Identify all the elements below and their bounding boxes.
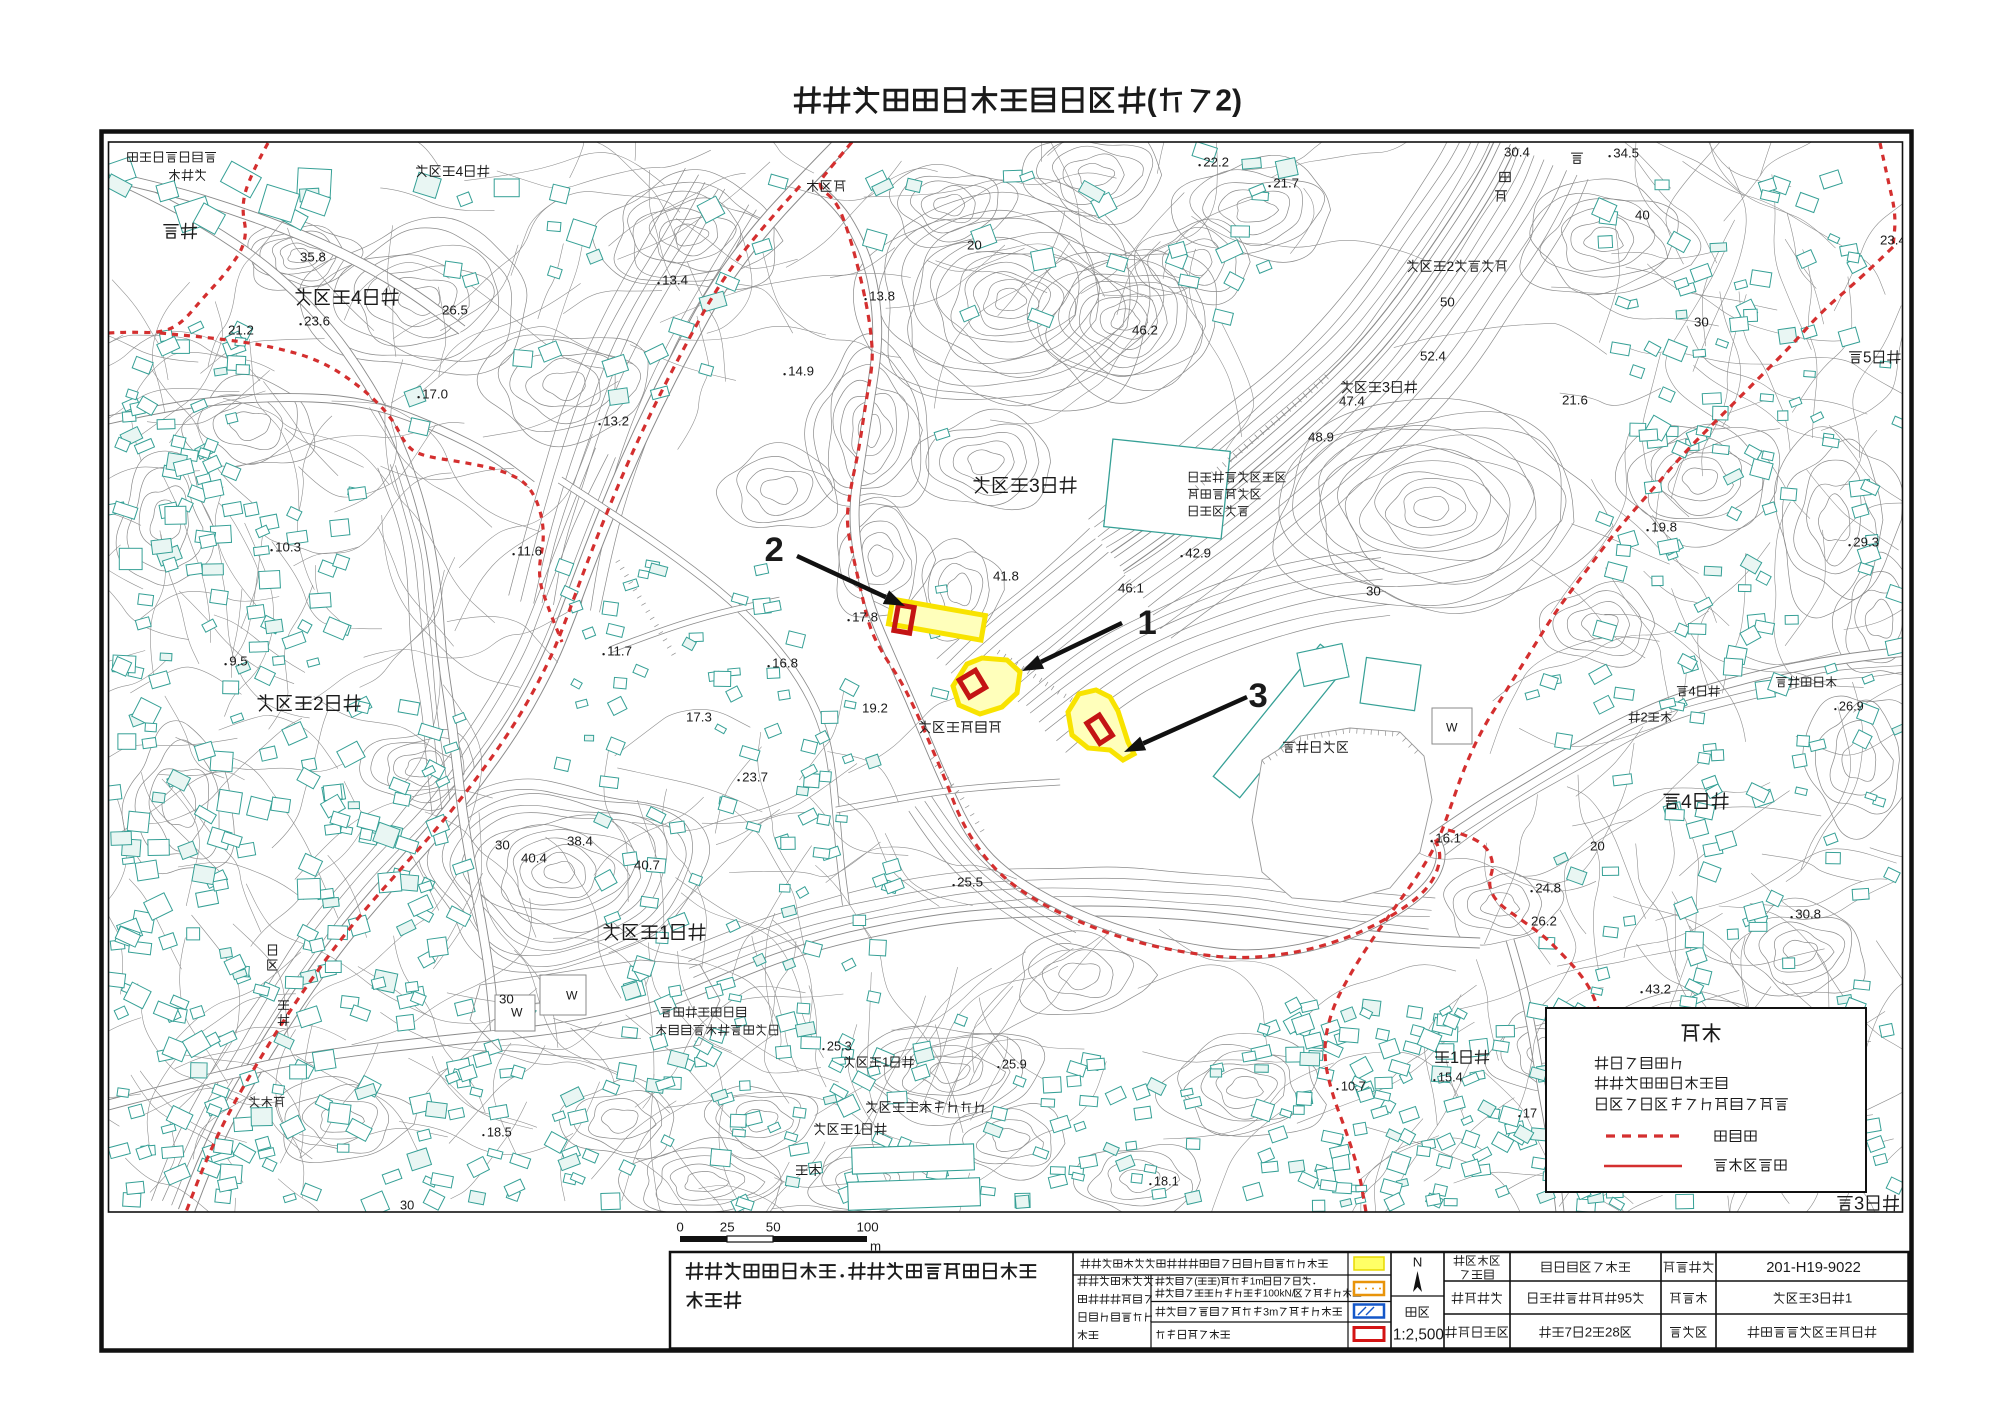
svg-text:10.3: 10.3 (275, 540, 301, 555)
svg-text:26.5: 26.5 (442, 303, 468, 318)
svg-text:13.8: 13.8 (869, 289, 895, 304)
svg-text:21.2: 21.2 (228, 323, 254, 338)
svg-text:1m: 1m (1250, 1277, 1264, 1288)
svg-text:34.5: 34.5 (1613, 146, 1639, 161)
svg-text:18.5: 18.5 (487, 1125, 512, 1140)
svg-text:7: 7 (1565, 1325, 1572, 1340)
svg-text:100: 100 (857, 1220, 879, 1235)
svg-text:17.8: 17.8 (852, 610, 878, 625)
svg-text:48.9: 48.9 (1308, 430, 1334, 445)
svg-text:40.4: 40.4 (521, 851, 547, 866)
svg-text:40.7: 40.7 (634, 858, 660, 873)
svg-text:25.5: 25.5 (957, 875, 983, 890)
svg-text:29.3: 29.3 (1853, 535, 1879, 550)
svg-text:30: 30 (1366, 584, 1381, 599)
svg-text:46.1: 46.1 (1118, 581, 1144, 596)
svg-text:30.8: 30.8 (1795, 907, 1821, 922)
svg-text:): ) (1217, 1277, 1220, 1288)
svg-text:43.2: 43.2 (1645, 982, 1671, 997)
svg-text:9.5: 9.5 (229, 654, 248, 669)
svg-text:38.4: 38.4 (567, 834, 593, 849)
svg-text:1: 1 (854, 1122, 862, 1137)
svg-text:21.6: 21.6 (1562, 393, 1588, 408)
svg-text:2): 2) (1215, 85, 1242, 118)
svg-text:95: 95 (1617, 1291, 1632, 1306)
svg-text:50: 50 (1440, 295, 1455, 310)
svg-text:16.1: 16.1 (1435, 831, 1461, 846)
svg-text:19.2: 19.2 (862, 701, 888, 716)
svg-text:17.3: 17.3 (686, 710, 712, 725)
svg-text:201-H19-9022: 201-H19-9022 (1766, 1260, 1861, 1276)
svg-text:21.7: 21.7 (1273, 176, 1299, 191)
svg-text:4: 4 (1681, 791, 1692, 813)
svg-text:0: 0 (676, 1220, 683, 1235)
svg-text:17.0: 17.0 (422, 387, 448, 402)
svg-text:2: 2 (1447, 259, 1455, 274)
svg-text:47.4: 47.4 (1339, 394, 1365, 409)
svg-text:14.9: 14.9 (788, 364, 814, 379)
svg-text:30: 30 (400, 1198, 414, 1213)
svg-text:1: 1 (1450, 1049, 1459, 1067)
svg-text:1: 1 (659, 922, 670, 944)
svg-text:1: 1 (882, 1055, 889, 1070)
svg-text:2: 2 (1641, 710, 1648, 725)
svg-text:4: 4 (351, 287, 362, 309)
svg-text:10.7: 10.7 (1341, 1079, 1366, 1094)
svg-text:W: W (511, 1005, 523, 1019)
svg-text:(: ( (1147, 85, 1157, 118)
svg-text:13.4: 13.4 (662, 273, 688, 288)
svg-text:26.9: 26.9 (1839, 699, 1864, 714)
svg-text:52.4: 52.4 (1420, 349, 1446, 364)
svg-text:25.3: 25.3 (827, 1039, 852, 1054)
svg-text:23.6: 23.6 (304, 314, 330, 329)
svg-text:2: 2 (1585, 1325, 1592, 1340)
svg-text:17: 17 (1523, 1106, 1537, 1121)
svg-text:25.9: 25.9 (1002, 1057, 1027, 1072)
svg-text:W: W (1446, 720, 1458, 734)
svg-text:30: 30 (1694, 315, 1709, 330)
svg-text:1:2,500: 1:2,500 (1393, 1326, 1444, 1343)
svg-text:W: W (566, 988, 578, 1002)
svg-text:15.4: 15.4 (1438, 1070, 1463, 1085)
svg-text:50: 50 (766, 1220, 781, 1235)
svg-text:11.6: 11.6 (517, 544, 542, 559)
svg-text:11.7: 11.7 (607, 644, 632, 659)
svg-text:28: 28 (1605, 1325, 1620, 1340)
svg-text:46.2: 46.2 (1132, 323, 1158, 338)
svg-text:20: 20 (967, 238, 982, 253)
svg-text:1: 1 (1138, 604, 1157, 642)
svg-text:42.9: 42.9 (1185, 546, 1211, 561)
svg-text:13.2: 13.2 (603, 414, 629, 429)
svg-text:35.8: 35.8 (300, 250, 326, 265)
svg-text:41.8: 41.8 (993, 569, 1019, 584)
svg-text:3: 3 (1249, 677, 1268, 715)
svg-text:3: 3 (1029, 475, 1040, 497)
svg-text:3m: 3m (1263, 1306, 1278, 1318)
svg-text:18.1: 18.1 (1154, 1174, 1179, 1189)
svg-text:40: 40 (1635, 208, 1650, 223)
svg-text:23.7: 23.7 (742, 770, 768, 785)
svg-text:1: 1 (1845, 1291, 1852, 1306)
svg-text:30.4: 30.4 (1504, 145, 1530, 160)
svg-text:4: 4 (456, 164, 464, 179)
svg-text:4: 4 (1689, 684, 1696, 699)
svg-text:3: 3 (1812, 1291, 1819, 1306)
svg-text:3: 3 (1382, 380, 1390, 396)
svg-text:2: 2 (765, 531, 784, 569)
svg-text:24.8: 24.8 (1535, 881, 1561, 896)
svg-text:2: 2 (313, 693, 324, 715)
svg-text:26.2: 26.2 (1531, 914, 1557, 929)
svg-text:30: 30 (495, 838, 510, 853)
svg-text:16.8: 16.8 (772, 656, 798, 671)
svg-text:25: 25 (720, 1220, 735, 1235)
svg-text:N: N (1413, 1255, 1423, 1270)
svg-text:5: 5 (1863, 349, 1872, 366)
svg-text:19.8: 19.8 (1651, 520, 1677, 535)
svg-text:100kN/: 100kN/ (1263, 1289, 1295, 1300)
svg-text:3: 3 (1854, 1193, 1864, 1214)
svg-text:22.2: 22.2 (1203, 155, 1229, 170)
svg-text:20: 20 (1590, 839, 1605, 854)
